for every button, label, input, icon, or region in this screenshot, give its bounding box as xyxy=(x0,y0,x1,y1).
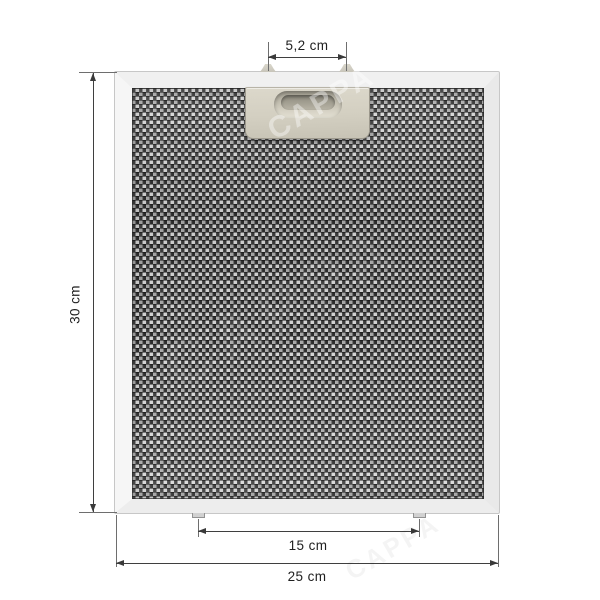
dimension-bottom-outer-label: 25 cm xyxy=(267,569,347,584)
grease-filter-dimension-diagram: 5,2 cm 30 cm 15 cm 25 cm CAPPA CAPPA CAP… xyxy=(0,0,600,600)
dimension-left-label: 30 cm xyxy=(68,275,83,335)
arrow-left-icon xyxy=(198,528,206,534)
handle-grip-recess xyxy=(281,95,335,110)
dimension-line xyxy=(198,531,419,532)
mounting-clip-top-right xyxy=(339,64,355,72)
extension-line xyxy=(79,512,117,513)
dimension-bottom-inner-label: 15 cm xyxy=(268,538,348,553)
arrow-left-icon xyxy=(268,54,276,60)
watermark: CAPPA xyxy=(340,508,446,587)
mounting-pin-bottom-left xyxy=(192,513,205,518)
arrow-right-icon xyxy=(411,528,419,534)
filter-mesh xyxy=(132,88,484,499)
dimension-line xyxy=(93,73,94,512)
mounting-pin-bottom-right xyxy=(413,513,426,518)
dimension-top-label: 5,2 cm xyxy=(267,38,347,53)
dimension-line xyxy=(116,563,498,564)
arrow-right-icon xyxy=(338,54,346,60)
arrow-left-icon xyxy=(116,560,124,566)
extension-line xyxy=(498,515,499,567)
extension-line xyxy=(419,519,420,537)
handle-grip xyxy=(274,91,342,118)
extension-line xyxy=(79,72,117,73)
dimension-line xyxy=(268,57,346,58)
filter-handle xyxy=(245,87,370,139)
arrow-down-icon xyxy=(90,504,96,512)
arrow-up-icon xyxy=(90,73,96,81)
arrow-right-icon xyxy=(490,560,498,566)
